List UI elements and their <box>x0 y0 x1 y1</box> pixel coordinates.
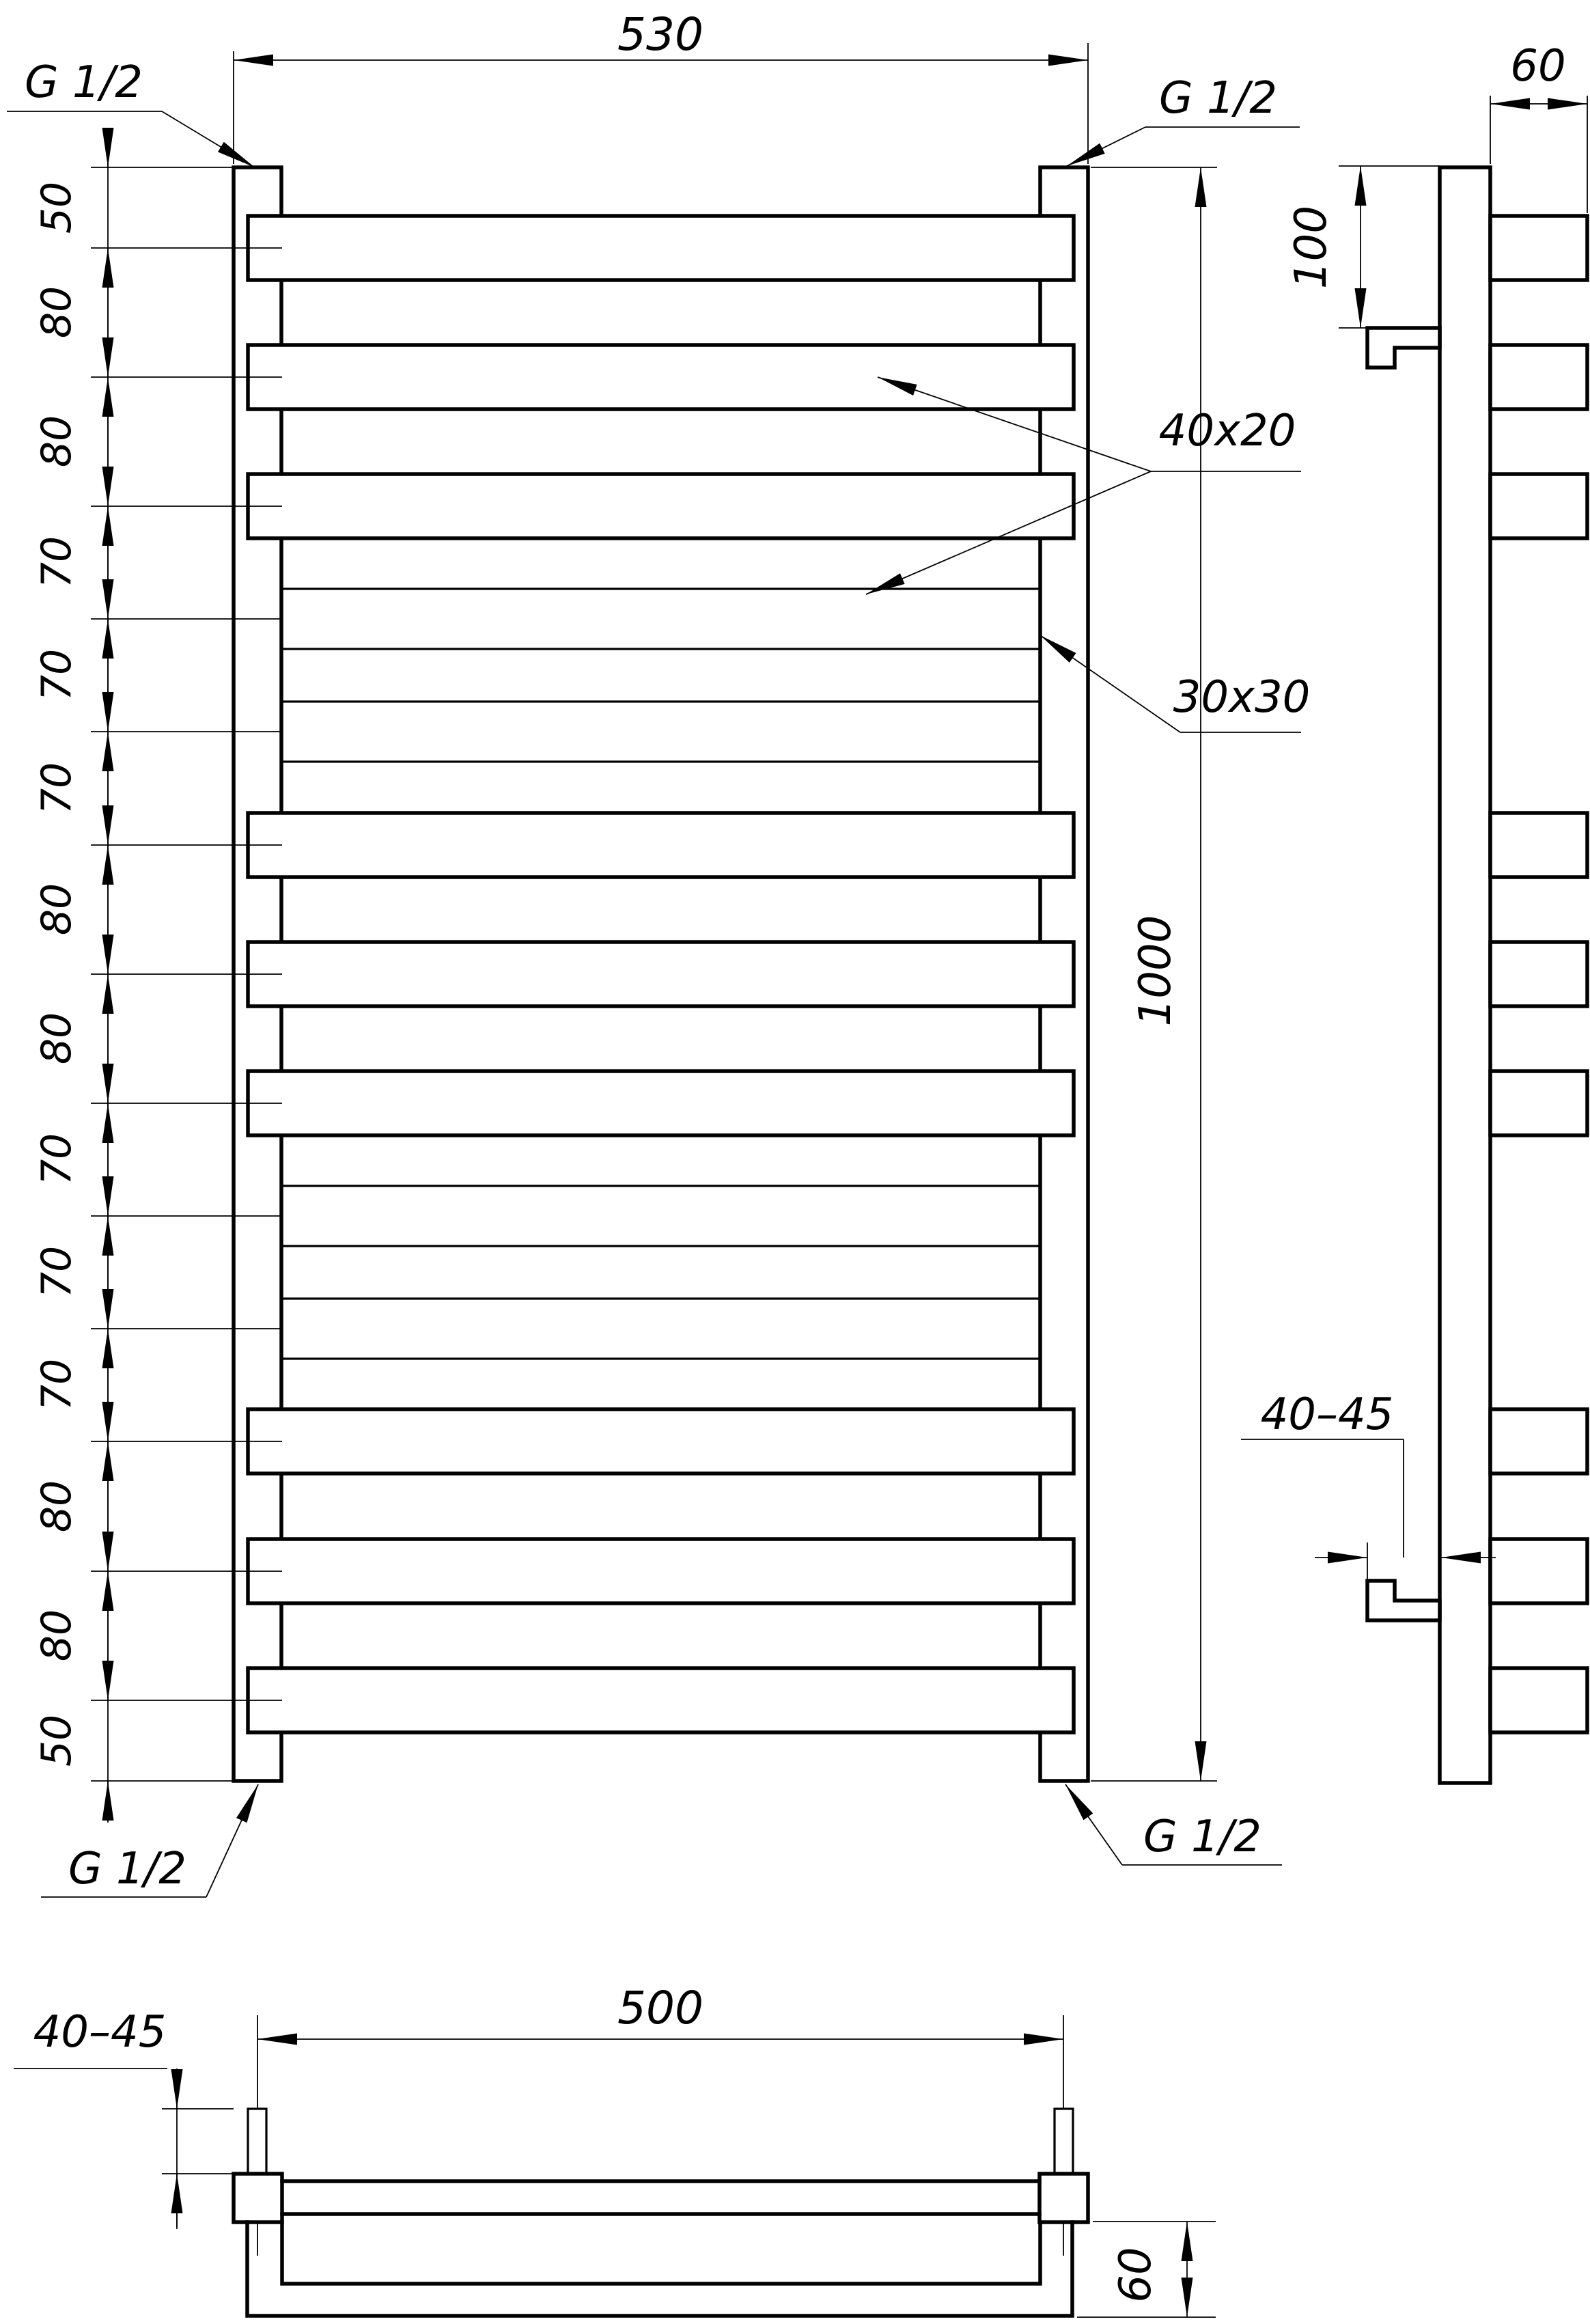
thread-label: G 1/2 <box>25 57 143 108</box>
side-rungs <box>1490 216 1587 1732</box>
side-view: 60 100 40–45 <box>1241 41 1587 1783</box>
chain-label: 70 <box>33 1359 81 1411</box>
left-connection-nipple <box>248 2109 266 2174</box>
protruding-rungs <box>248 216 1074 1732</box>
dim-text-60: 60 <box>1510 41 1565 92</box>
leader-g12-bottom-right: G 1/2 <box>1065 1784 1282 1865</box>
side-collector-tube <box>1440 167 1490 1783</box>
wall-bracket-bottom <box>1367 1581 1440 1620</box>
leader-g12-bottom-left: G 1/2 <box>41 1784 258 1897</box>
bottom-view: 500 40–45 60 <box>14 1982 1216 2317</box>
bottom-rung-channel-inner <box>282 2222 1040 2284</box>
left-collector-end <box>234 2174 282 2222</box>
dim-text-40-45: 40–45 <box>33 2007 167 2058</box>
chain-label: 50 <box>33 182 81 234</box>
dim-text-60: 60 <box>1111 2247 1161 2302</box>
chain-label: 70 <box>33 762 81 814</box>
right-collector-end <box>1040 2174 1088 2222</box>
chain-label: 70 <box>33 649 81 701</box>
chain-label: 70 <box>33 536 81 588</box>
leader-g12-top-right: G 1/2 <box>1067 73 1300 166</box>
thread-label: G 1/2 <box>1159 73 1277 124</box>
thread-label: G 1/2 <box>68 1844 186 1894</box>
rung-profile-label: 40x20 <box>1159 406 1296 456</box>
chain-label: 70 <box>33 1133 81 1185</box>
chain-label: 70 <box>33 1246 81 1298</box>
thread-label: G 1/2 <box>1143 1812 1261 1862</box>
dim-text-1000: 1000 <box>1130 915 1181 1027</box>
wall-bracket-top <box>1367 328 1440 368</box>
dim-bottom-depth-60: 60 <box>1077 2222 1216 2317</box>
dim-text-40-45: 40–45 <box>1261 1389 1394 1440</box>
right-connection-nipple <box>1055 2109 1073 2174</box>
dim-side-depth-60: 60 <box>1490 41 1587 213</box>
chain-label: 50 <box>33 1715 81 1767</box>
chain-label: 80 <box>33 286 81 338</box>
dim-bottom-wall-clearance: 40–45 <box>14 2007 234 2229</box>
dim-connection-spacing-500: 500 <box>257 1982 1063 2039</box>
chain-label: 80 <box>33 1480 81 1532</box>
dim-text-100: 100 <box>1286 206 1337 289</box>
dim-text-530: 530 <box>617 8 703 61</box>
front-view: 530 1000 <box>7 8 1310 1897</box>
towel-rail-technical-drawing: 530 1000 <box>0 0 1590 2324</box>
chain-label: 80 <box>33 1012 81 1064</box>
dim-bracket-offset-100: 100 <box>1286 166 1440 328</box>
dim-text-500: 500 <box>617 1982 703 2034</box>
leader-g12-top-left: G 1/2 <box>7 57 255 167</box>
bottom-rung-channel-outer <box>247 2222 1072 2316</box>
chain-label: 80 <box>33 415 81 467</box>
chain-label: 80 <box>33 1609 81 1661</box>
dim-width-530: 530 <box>234 8 1088 164</box>
drawing-sheet: { "page": { "background": "#ffffff", "li… <box>0 0 1590 2324</box>
chain-label: 80 <box>33 883 81 935</box>
collector-profile-label: 30x30 <box>1173 672 1311 723</box>
